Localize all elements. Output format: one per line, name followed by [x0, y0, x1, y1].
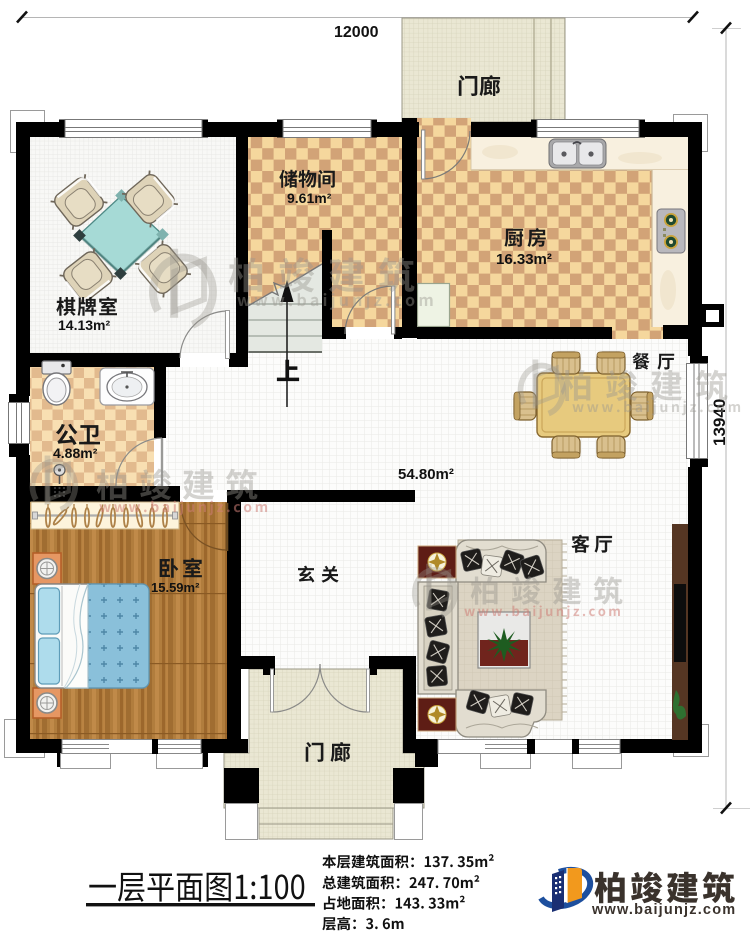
- svg-text:54.80m²: 54.80m²: [398, 466, 454, 483]
- svg-text:16.33m²: 16.33m²: [496, 251, 552, 268]
- svg-text:4.88m²: 4.88m²: [53, 445, 98, 461]
- svg-text:www.baijunjz.com: www.baijunjz.com: [591, 902, 736, 918]
- svg-text:14.13m²: 14.13m²: [58, 317, 110, 333]
- svg-text:15.59m²: 15.59m²: [151, 580, 200, 595]
- svg-text:9.61m²: 9.61m²: [287, 190, 332, 206]
- svg-text:12000: 12000: [334, 24, 379, 41]
